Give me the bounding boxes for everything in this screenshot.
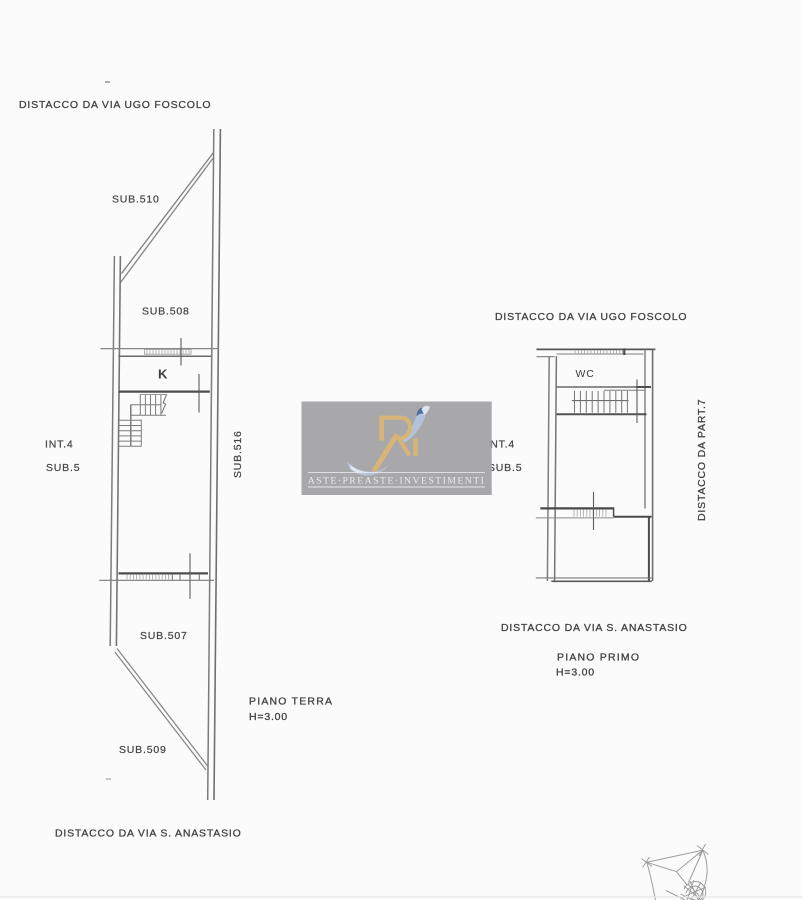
svg-text:DISTACCO DA PART.7: DISTACCO DA PART.7 [696,399,708,521]
svg-text:SUB.508: SUB.508 [142,306,190,318]
svg-text:SUB.510: SUB.510 [112,194,160,206]
svg-text:DISTACCO DA VIA UGO FOSCOLO: DISTACCO DA VIA UGO FOSCOLO [19,99,211,111]
svg-text:INT.4: INT.4 [45,439,74,451]
svg-text:PIANO TERRA: PIANO TERRA [249,696,333,708]
svg-text:K: K [158,367,168,382]
svg-text:PIANO PRIMO: PIANO PRIMO [557,652,640,664]
svg-text:SUB.516: SUB.516 [232,430,244,478]
svg-text:H=3.00: H=3.00 [249,711,288,723]
svg-text:SUB.509: SUB.509 [119,744,167,756]
svg-text:ASTE·PREASTE·INVESTIMENTI: ASTE·PREASTE·INVESTIMENTI [308,476,486,487]
svg-text:SUB.5: SUB.5 [46,462,80,474]
svg-text:H=3.00: H=3.00 [556,667,595,679]
svg-text:DISTACCO DA VIA UGO FOSCOLO: DISTACCO DA VIA UGO FOSCOLO [495,311,687,323]
svg-text:DISTACCO DA VIA S. ANASTASIO: DISTACCO DA VIA S. ANASTASIO [55,828,242,840]
svg-text:SUB.507: SUB.507 [140,630,188,642]
svg-text:DISTACCO DA VIA S. ANASTASIO: DISTACCO DA VIA S. ANASTASIO [501,622,688,634]
svg-text:WC: WC [576,368,595,380]
svg-text:SUB.5: SUB.5 [488,462,522,474]
